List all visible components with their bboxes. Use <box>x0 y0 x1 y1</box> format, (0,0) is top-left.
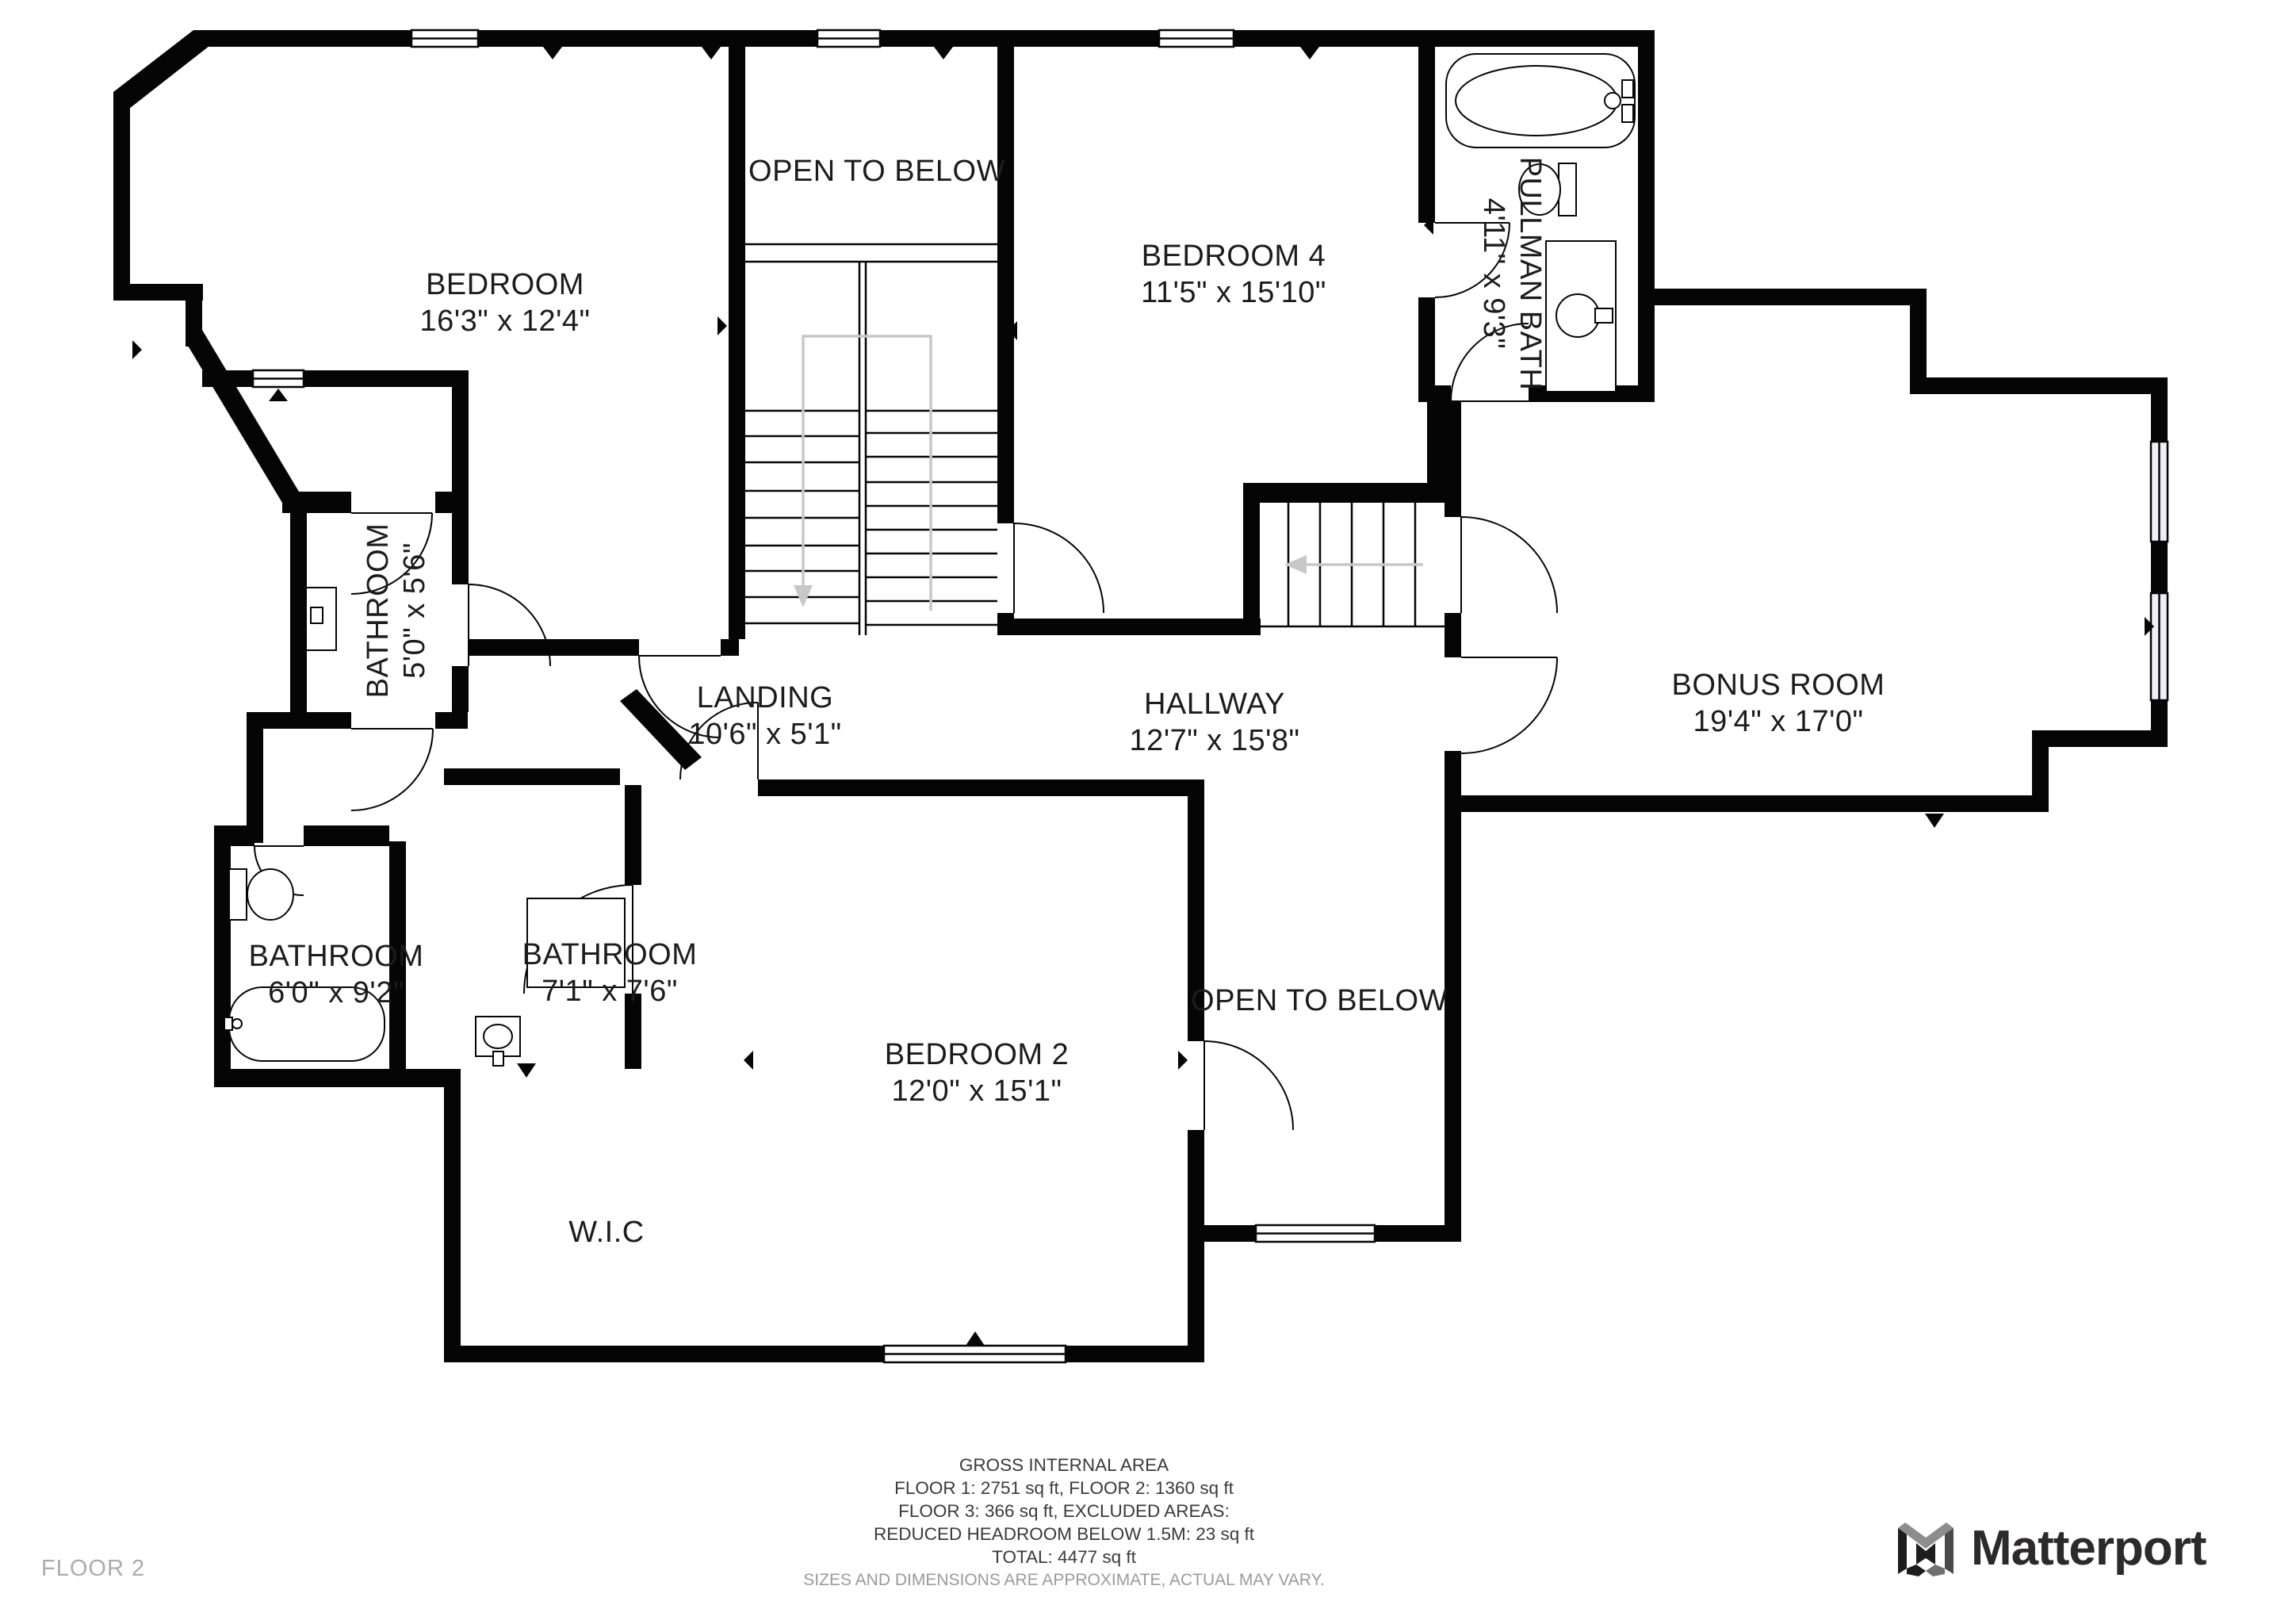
marker-arrow-icon <box>702 47 721 59</box>
door-arc-icon <box>1461 657 1557 753</box>
door-swings <box>254 223 1557 1130</box>
excluded-areas-line: REDUCED HEADROOM BELOW 1.5M: 23 sq ft <box>803 1522 1324 1545</box>
main-staircase <box>745 244 997 635</box>
gross-internal-area-title: GROSS INTERNAL AREA <box>803 1454 1324 1477</box>
door-arc-icon <box>680 703 758 779</box>
toilet-icon <box>1519 163 1576 216</box>
marker-arrow-icon <box>1178 1051 1188 1070</box>
marker-arrow-icon <box>744 1051 753 1070</box>
floorplan-drawing <box>0 0 2296 1624</box>
bathtub-icon <box>1446 54 1635 147</box>
walls <box>113 30 2168 1362</box>
shower-icon <box>527 898 625 987</box>
door-arc-icon <box>1014 523 1104 613</box>
bathtub-icon <box>224 987 385 1061</box>
door-arc-icon <box>1435 223 1510 297</box>
door-arc-icon <box>1204 1041 1293 1130</box>
matterport-wordmark: Matterport <box>1971 1521 2206 1576</box>
window-icon <box>253 30 1375 1362</box>
marker-arrow-icon <box>1300 47 1319 59</box>
door-arc-icon <box>1461 517 1557 613</box>
door-arc-icon <box>351 729 433 810</box>
sink-icon <box>1546 241 1616 392</box>
marker-arrow-icon <box>1925 814 1944 828</box>
marker-arrow-icon <box>269 389 288 401</box>
marker-arrow-icon <box>966 1331 985 1346</box>
marker-arrow-icon <box>517 1063 536 1078</box>
disclaimer-line: SIZES AND DIMENSIONS ARE APPROXIMATE, AC… <box>803 1568 1324 1591</box>
marker-arrow-icon <box>543 47 562 59</box>
marker-arrow-icon <box>132 340 142 359</box>
area-summary: GROSS INTERNAL AREA FLOOR 1: 2751 sq ft,… <box>803 1454 1324 1591</box>
floor-label: FLOOR 2 <box>41 1556 145 1582</box>
sink-icon <box>476 1017 520 1066</box>
door-arc-icon <box>351 513 432 594</box>
matterport-brand: Matterport <box>1896 1521 2206 1584</box>
windows <box>253 30 2168 1362</box>
opening-markers <box>132 47 2154 1346</box>
matterport-logo-icon <box>1896 1521 1955 1584</box>
sink-icon <box>306 588 336 650</box>
marker-arrow-icon <box>717 316 727 335</box>
marker-arrow-icon <box>934 47 953 59</box>
total-area-line: TOTAL: 4477 sq ft <box>803 1545 1324 1568</box>
stair-direction-guides <box>794 336 1423 611</box>
floorplan-stage: BEDROOM 16'3" x 12'4" OPEN TO BELOW BEDR… <box>0 0 2296 1624</box>
door-arc-icon <box>1451 324 1529 401</box>
floor-areas-line-1: FLOOR 1: 2751 sq ft, FLOOR 2: 1360 sq ft <box>803 1477 1324 1500</box>
floor-areas-line-2: FLOOR 3: 366 sq ft, EXCLUDED AREAS: <box>803 1500 1324 1522</box>
toilet-icon <box>229 869 293 920</box>
